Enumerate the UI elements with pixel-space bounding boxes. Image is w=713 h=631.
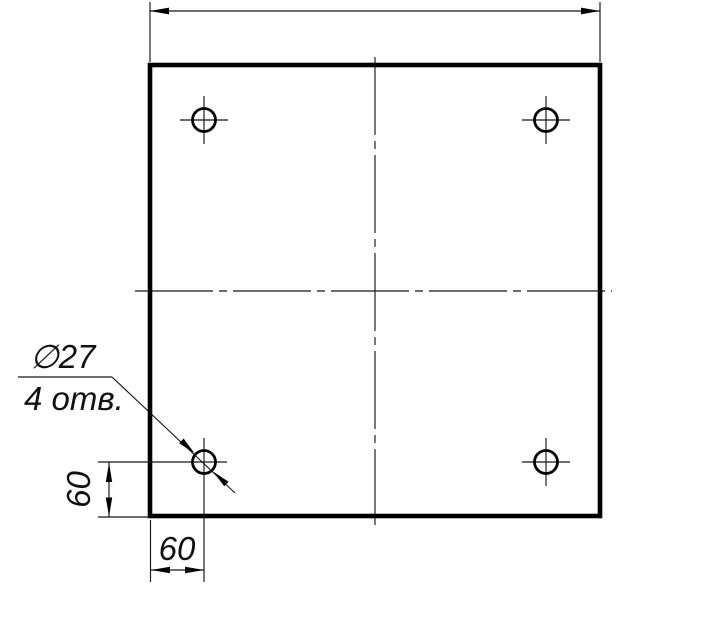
hole-diameter-label: ∅27	[30, 338, 97, 375]
drawing-sheet: ∅27 4 отв.	[0, 0, 713, 631]
paper	[0, 0, 713, 631]
engineering-drawing: ∅27 4 отв.	[0, 0, 713, 631]
left-offset-value: 60	[60, 471, 97, 508]
hole-count-label: 4 отв.	[24, 380, 124, 417]
bottom-offset-value: 60	[159, 530, 196, 567]
